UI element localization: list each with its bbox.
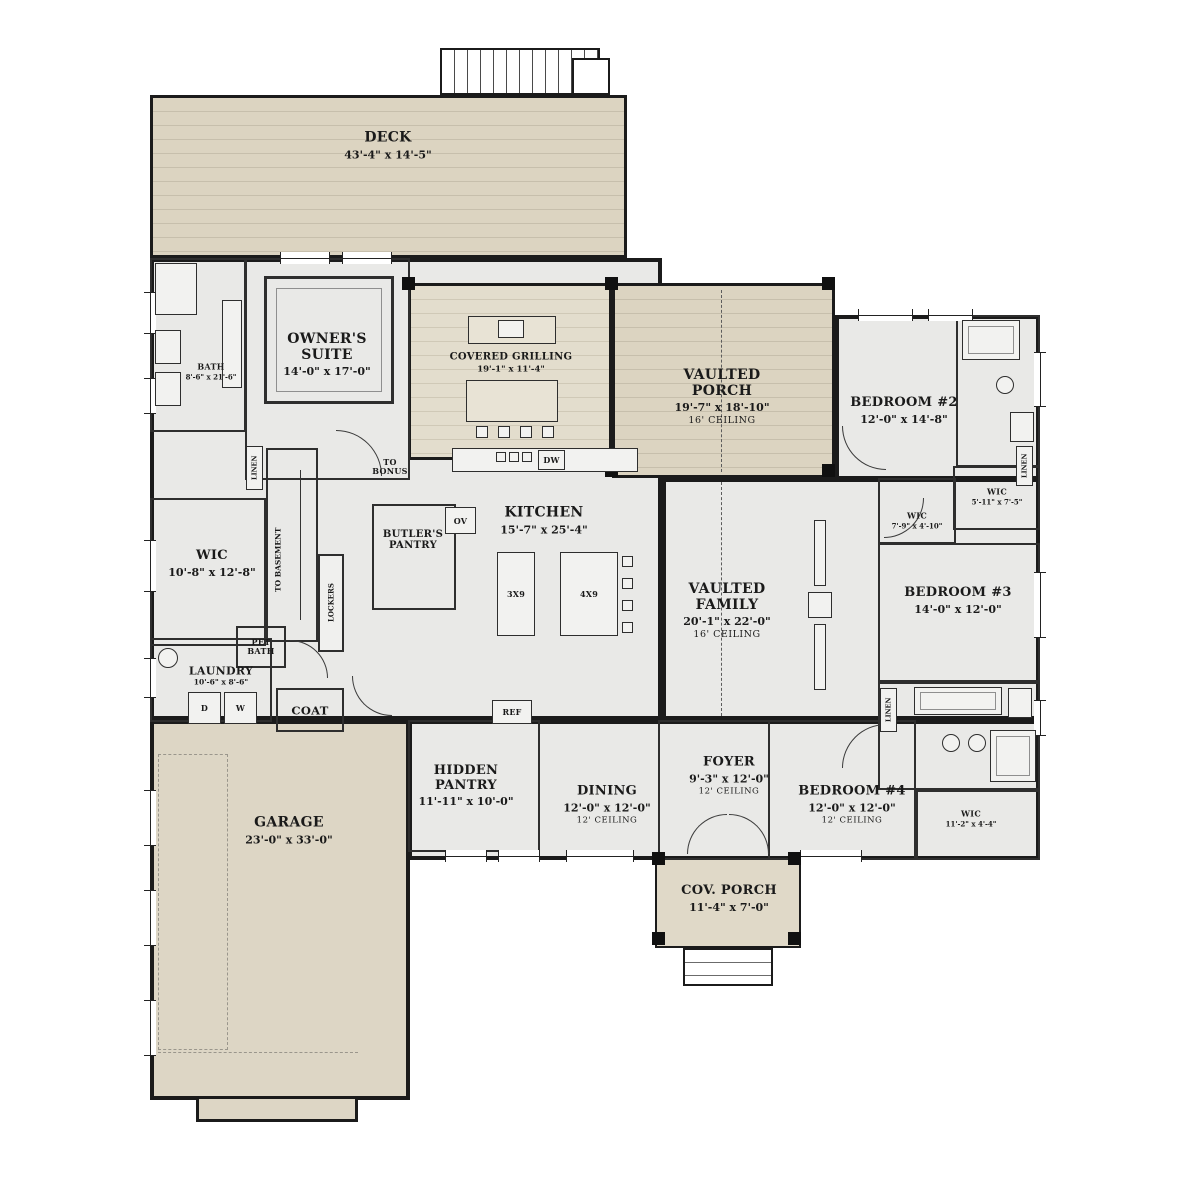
- window: [566, 850, 634, 862]
- dishwasher: DW: [538, 450, 565, 470]
- media-wall-upper: [814, 520, 826, 586]
- shared-bath-shower-inner: [996, 736, 1030, 776]
- room-dims: 19'-7" x 18'-10": [662, 401, 782, 414]
- room-label-garage: GARAGE 23'-0" x 33'-0": [245, 816, 332, 847]
- window: [144, 790, 156, 846]
- washer: W: [224, 692, 257, 724]
- room-name: COV. PORCH: [681, 884, 777, 899]
- stool: [520, 426, 532, 438]
- window: [1034, 572, 1046, 638]
- stair-direction-line: [300, 470, 301, 620]
- room-ceiling: 16' CEILING: [662, 415, 782, 426]
- cov-porch-post: [652, 852, 665, 865]
- room-ceiling: 12' CEILING: [798, 815, 905, 825]
- island-small-label: 3X9: [507, 589, 525, 599]
- room-name: FOYER: [689, 756, 769, 771]
- to-basement-text: TO BASEMENT: [274, 528, 283, 592]
- room-label-butlers-pantry: BUTLER'S PANTRY: [382, 529, 444, 551]
- kitchen-island-small: 3X9: [497, 552, 535, 636]
- to-basement-label: TO BASEMENT: [268, 500, 288, 620]
- dishwasher-label: DW: [543, 455, 559, 465]
- room-name: WIC: [168, 549, 255, 564]
- room-name: COVERED GRILLING: [411, 351, 611, 362]
- cov-porch-post: [788, 852, 801, 865]
- cov-porch-post: [788, 932, 801, 945]
- window: [445, 850, 487, 862]
- garage-dashed-outline: [158, 754, 228, 1050]
- laundry-sink: [158, 648, 178, 668]
- room-label-coat: COAT: [291, 705, 328, 718]
- room-label-bedroom4: BEDROOM #4 12'-0" x 12'-0" 12' CEILING: [798, 785, 905, 826]
- room-label-cov-porch: COV. PORCH 11'-4" x 7'-0": [681, 884, 777, 914]
- window: [498, 850, 540, 862]
- room-name: GARAGE: [245, 816, 332, 832]
- room-name: OWNER'S SUITE: [267, 332, 387, 363]
- room-dims: 14'-0" x 12'-0": [904, 603, 1011, 616]
- room-name: BUTLER'S PANTRY: [382, 529, 444, 551]
- window: [144, 658, 156, 698]
- bath2-sink: [996, 376, 1014, 394]
- room-dims: 19'-1" x 11'-4": [411, 365, 611, 375]
- stool: [542, 426, 554, 438]
- room-dims: 15'-7" x 25'-4": [500, 523, 587, 536]
- room-dims: 14'-0" x 17'-0": [267, 365, 387, 378]
- island-large-label: 4X9: [580, 589, 598, 599]
- window: [144, 1000, 156, 1056]
- room-label-hidden-pantry: HIDDEN PANTRY 11'-11" x 10'-0": [411, 764, 521, 808]
- grilling-post: [402, 277, 415, 290]
- room-name: LAUNDRY: [189, 665, 253, 677]
- room-label-foyer: FOYER 9'-3" x 12'-0" 12' CEILING: [689, 756, 769, 797]
- linen-closet: LINEN: [880, 688, 897, 732]
- linen-label: LINEN: [251, 456, 259, 480]
- room-name: VAULTED PORCH: [662, 368, 782, 399]
- dryer-label: D: [201, 703, 208, 713]
- room-dims: 10'-6" x 8'-6": [189, 678, 253, 687]
- room-dims: 10'-8" x 12'-8": [168, 566, 255, 579]
- room-dims: 20'-1" x 22'-0": [667, 615, 787, 628]
- room-label-deck: DECK 43'-4" x 14'-5": [344, 131, 431, 162]
- shared-bath-toilet: [1008, 688, 1032, 718]
- room-label-wic-511: WIC 5'-11" x 7'-5": [972, 488, 1023, 507]
- grilling-island: [466, 380, 558, 422]
- room-dims: 5'-11" x 7'-5": [972, 497, 1023, 506]
- room-label-pet-bath: PET BATH: [241, 638, 281, 656]
- garage-bay-front: [196, 1096, 358, 1122]
- room-dims: 9'-3" x 12'-0": [689, 772, 769, 785]
- room-name: WIC: [972, 488, 1023, 497]
- grill: [498, 320, 524, 338]
- stool: [622, 556, 633, 567]
- stool: [622, 600, 633, 611]
- room-dims: 12'-0" x 12'-0": [563, 801, 650, 814]
- room-label-owners-suite: OWNER'S SUITE 14'-0" x 17'-0": [267, 332, 387, 378]
- room-label-owners-bath: BATH 8'-6" x 21'-6": [175, 363, 247, 382]
- room-name: DINING: [563, 785, 650, 800]
- room-dims: 12'-0" x 14'-8": [850, 413, 957, 426]
- refrigerator: REF: [492, 700, 532, 724]
- bath2-shower-inner: [968, 326, 1014, 354]
- room-dims: 11'-2" x 4'-4": [946, 819, 997, 828]
- room-label-covered-grilling: COVERED GRILLING 19'-1" x 11'-4": [411, 351, 611, 374]
- window: [144, 540, 156, 592]
- room-dims: 7'-9" x 4'-10": [892, 521, 943, 530]
- room-name: BEDROOM #2: [850, 396, 957, 411]
- shared-bath-sink: [942, 734, 960, 752]
- cooktop-burner: [496, 452, 506, 462]
- oven-label: OV: [454, 516, 467, 526]
- oven: OV: [445, 507, 476, 534]
- butlers-pantry-room: [372, 504, 456, 610]
- room-name: HIDDEN PANTRY: [411, 764, 521, 793]
- room-label-bedroom2: BEDROOM #2 12'-0" x 14'-8": [850, 396, 957, 426]
- to-bonus-label: TO BONUS: [366, 458, 414, 476]
- window: [800, 850, 862, 862]
- to-bonus-text: TO BONUS: [366, 458, 414, 476]
- room-ceiling: 12' CEILING: [563, 815, 650, 825]
- room-dims: 8'-6" x 21'-6": [175, 372, 247, 381]
- window: [1034, 352, 1046, 407]
- linen-closet: LINEN: [1016, 446, 1033, 486]
- window: [144, 890, 156, 946]
- room-label-wic-112: WIC 11'-2" x 4'-4": [946, 810, 997, 829]
- owners-vanity: [155, 330, 181, 364]
- room-name: VAULTED FAMILY: [667, 582, 787, 613]
- fridge-label: REF: [502, 707, 521, 717]
- cov-porch-post: [652, 932, 665, 945]
- deck-area: [150, 95, 627, 258]
- room-label-vaulted-family: VAULTED FAMILY 20'-1" x 22'-0" 16' CEILI…: [667, 582, 787, 640]
- floor-plan-page: { "colors": { "wall": "#1b1b1b", "interi…: [0, 0, 1200, 1186]
- owners-shower: [155, 263, 197, 315]
- stool: [622, 622, 633, 633]
- stool: [498, 426, 510, 438]
- porch-post: [822, 464, 835, 477]
- window: [342, 252, 392, 264]
- linen-label: LINEN: [1021, 454, 1029, 478]
- kitchen-island-large: 4X9: [560, 552, 618, 636]
- shared-bath-sink: [968, 734, 986, 752]
- media-wall-lower: [814, 624, 826, 690]
- room-name: PET BATH: [241, 638, 281, 656]
- room-name: BEDROOM #3: [904, 586, 1011, 601]
- porch-steps: [683, 948, 773, 986]
- room-label-wic-left: WIC 10'-8" x 12'-8": [168, 549, 255, 579]
- room-label-kitchen: KITCHEN 15'-7" x 25'-4": [500, 506, 587, 537]
- room-name: BEDROOM #4: [798, 785, 905, 800]
- room-name: COAT: [291, 705, 328, 718]
- room-label-vaulted-porch: VAULTED PORCH 19'-7" x 18'-10" 16' CEILI…: [662, 368, 782, 426]
- room-dims: 23'-0" x 33'-0": [245, 833, 332, 846]
- room-name: BATH: [175, 363, 247, 372]
- room-name: WIC: [946, 810, 997, 819]
- porch-post: [605, 277, 618, 290]
- room-name: WIC: [892, 512, 943, 521]
- room-label-dining: DINING 12'-0" x 12'-0" 12' CEILING: [563, 785, 650, 826]
- window: [858, 309, 913, 321]
- room-dims: 11'-4" x 7'-0": [681, 901, 777, 914]
- room-ceiling: 12' CEILING: [689, 786, 769, 796]
- room-name: DECK: [344, 131, 431, 147]
- washer-label: W: [236, 703, 245, 713]
- stool: [622, 578, 633, 589]
- room-dims: 43'-4" x 14'-5": [344, 148, 431, 161]
- room-name: KITCHEN: [500, 506, 587, 522]
- lockers-label: LOCKERS: [321, 566, 341, 640]
- room-dims: 12'-0" x 12'-0": [798, 801, 905, 814]
- room-dims: 11'-11" x 10'-0": [411, 795, 521, 808]
- cooktop-burner: [522, 452, 532, 462]
- garage-dashed-line: [158, 1052, 358, 1053]
- bath2-toilet: [1010, 412, 1034, 442]
- porch-post: [822, 277, 835, 290]
- deck-stairs-landing: [572, 58, 610, 95]
- cooktop-burner: [509, 452, 519, 462]
- room-label-wic-79: WIC 7'-9" x 4'-10": [892, 512, 943, 531]
- fireplace: [808, 592, 832, 618]
- linen-label: LINEN: [885, 698, 893, 722]
- lockers-text: LOCKERS: [327, 584, 336, 623]
- dryer: D: [188, 692, 221, 724]
- stool: [476, 426, 488, 438]
- room-ceiling: 16' CEILING: [667, 629, 787, 640]
- window: [280, 252, 330, 264]
- room-label-laundry: LAUNDRY 10'-6" x 8'-6": [189, 665, 253, 686]
- room-label-bedroom3: BEDROOM #3 14'-0" x 12'-0": [904, 586, 1011, 616]
- shared-bath-tub-inner: [920, 692, 996, 710]
- linen-closet: LINEN: [246, 446, 263, 490]
